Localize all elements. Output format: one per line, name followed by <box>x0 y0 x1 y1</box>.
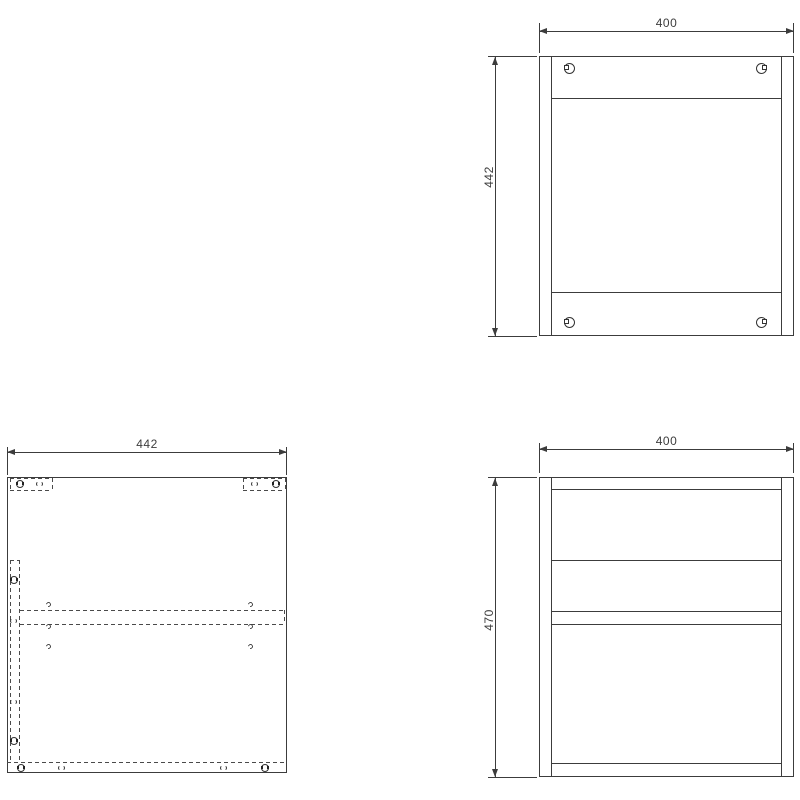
cam-lock-icon <box>756 63 767 74</box>
dimension-line <box>539 31 794 32</box>
cam-lock-top-icon <box>10 576 18 584</box>
side-shelf-top-edge <box>551 611 782 612</box>
cam-slot <box>22 482 24 485</box>
arrowhead-up <box>492 57 498 65</box>
hole-icon <box>10 618 17 624</box>
hidden-edge <box>10 560 11 763</box>
hole-icon <box>251 481 258 487</box>
hole-icon <box>36 481 43 487</box>
hidden-edge <box>7 762 287 763</box>
front-height-dimension-label: 442 <box>482 147 496 207</box>
cam-notch <box>762 65 767 70</box>
arrowhead-down <box>492 769 498 777</box>
side-width-dimension-label: 400 <box>539 434 794 448</box>
cam-lock-top-icon <box>10 737 18 745</box>
plan-width-dimension-label: 442 <box>7 437 287 451</box>
hidden-shelf-edge <box>284 610 285 624</box>
side-shelf-bottom-edge <box>551 624 782 625</box>
hidden-edge <box>10 478 11 490</box>
cam-slot <box>16 482 18 485</box>
cam-slot <box>23 766 25 769</box>
cam-slot <box>261 766 263 769</box>
side-rail-edge <box>551 560 782 561</box>
hidden-edge <box>52 478 53 490</box>
hidden-edge <box>19 560 20 763</box>
side-height-dimension-label: 470 <box>482 590 496 650</box>
hole-icon <box>58 765 65 771</box>
front-top-rail-edge <box>551 98 782 99</box>
cam-slot <box>17 766 19 769</box>
cam-lock-icon <box>564 63 575 74</box>
cam-lock-top-icon <box>261 764 269 772</box>
cam-slot <box>16 578 18 581</box>
hidden-shelf-edge <box>20 624 284 625</box>
front-width-dimension-label: 400 <box>539 16 794 30</box>
side-top-rail-edge <box>551 489 782 490</box>
dimension-line <box>7 452 287 453</box>
cam-notch <box>762 319 767 324</box>
cam-slot <box>16 739 18 742</box>
front-bottom-rail-edge <box>551 292 782 293</box>
arrowhead-down <box>492 328 498 336</box>
hidden-edge <box>243 490 285 491</box>
hidden-shelf-edge <box>20 610 284 611</box>
cam-notch <box>564 319 569 324</box>
dimension-line <box>539 449 794 450</box>
cam-notch <box>564 65 569 70</box>
hidden-edge <box>285 478 286 490</box>
hidden-edge <box>243 478 285 479</box>
cam-lock-top-icon <box>17 764 25 772</box>
hidden-edge <box>10 560 19 561</box>
cam-slot <box>272 482 274 485</box>
hidden-edge <box>243 478 244 490</box>
technical-drawing-canvas: 400 442 <box>0 0 800 800</box>
cam-slot <box>267 766 269 769</box>
cam-slot <box>10 578 12 581</box>
side-bottom-rail-edge <box>551 763 782 764</box>
cam-lock-top-icon <box>16 480 24 488</box>
hole-icon <box>220 765 227 771</box>
hidden-edge <box>10 478 52 479</box>
extension-line <box>488 777 537 778</box>
cam-slot <box>10 739 12 742</box>
side-outline <box>539 477 794 777</box>
cam-slot <box>278 482 280 485</box>
hidden-edge <box>10 490 52 491</box>
extension-line <box>488 336 537 337</box>
hole-icon <box>10 699 17 705</box>
cam-lock-top-icon <box>272 480 280 488</box>
arrowhead-up <box>492 478 498 486</box>
side-back-edge <box>781 477 782 777</box>
side-front-edge <box>551 477 552 777</box>
cam-lock-icon <box>564 317 575 328</box>
cam-lock-icon <box>756 317 767 328</box>
